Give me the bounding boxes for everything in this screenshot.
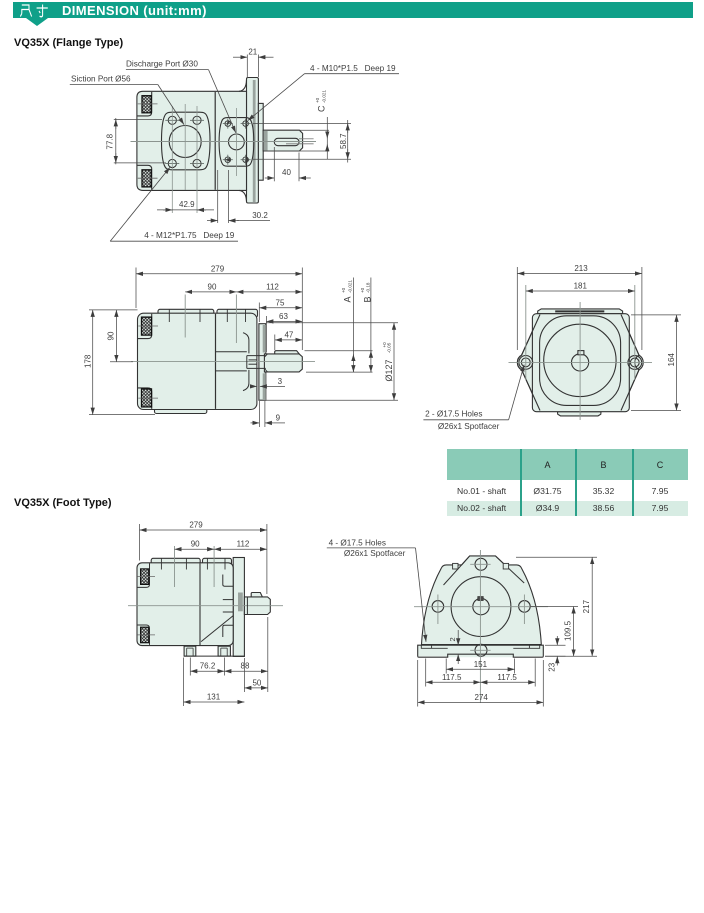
svg-text:131: 131 [207,693,221,702]
svg-text:279: 279 [211,264,225,273]
svg-text:213: 213 [574,264,588,273]
svg-text:2 - Ø17.5 Holes: 2 - Ø17.5 Holes [425,410,482,419]
svg-text:77.8: 77.8 [106,133,115,149]
svg-text:178: 178 [84,354,93,368]
svg-text:Ø26x1 Spotfacer: Ø26x1 Spotfacer [344,549,406,558]
svg-text:30.2: 30.2 [252,211,268,220]
svg-text:75: 75 [276,298,285,307]
svg-text:279: 279 [189,521,203,530]
svg-text:40: 40 [282,168,291,177]
svg-text:9: 9 [276,413,281,422]
svg-text:-0.18: -0.18 [365,282,370,293]
svg-text:Ø127: Ø127 [384,359,394,381]
svg-text:117.5: 117.5 [497,673,517,682]
svg-text:112: 112 [266,282,279,291]
svg-text:90: 90 [107,331,116,340]
svg-text:4 - M10*P1.5 Deep 19: 4 - M10*P1.5 Deep 19 [310,64,396,73]
svg-text:+0: +0 [315,97,320,103]
svg-text:181: 181 [574,282,588,291]
svg-text:4 - Ø17.5 Holes: 4 - Ø17.5 Holes [329,539,386,548]
svg-text:151: 151 [474,660,488,669]
svg-text:42.9: 42.9 [179,200,195,209]
svg-text:90: 90 [208,282,217,291]
svg-text:Ø26x1 Spotfacer: Ø26x1 Spotfacer [438,422,500,431]
svg-text:117.5: 117.5 [442,673,462,682]
svg-text:112: 112 [237,540,250,549]
svg-text:90: 90 [191,540,200,549]
svg-text:109.5: 109.5 [564,620,573,641]
svg-text:+0: +0 [341,287,346,293]
svg-text:+0: +0 [360,287,365,293]
svg-text:23: 23 [547,662,556,671]
svg-text:63: 63 [279,312,288,321]
svg-text:2: 2 [448,637,457,641]
svg-text:C: C [317,105,327,112]
svg-text:4 - M12*P1.75 Deep 19: 4 - M12*P1.75 Deep 19 [144,231,235,240]
svg-text:88: 88 [241,662,250,671]
svg-text:Discharge Port Ø30: Discharge Port Ø30 [126,60,198,69]
svg-text:217: 217 [582,599,591,613]
svg-text:76.2: 76.2 [200,662,216,671]
svg-text:A: A [343,296,353,302]
svg-text:164: 164 [667,353,676,367]
svg-text:47: 47 [284,330,293,339]
svg-text:-0.021: -0.021 [348,280,353,293]
svg-text:50: 50 [252,678,261,687]
svg-text:B: B [363,296,373,302]
svg-text:3: 3 [278,377,283,386]
svg-text:21: 21 [248,47,257,56]
svg-text:Siction Port Ø56: Siction Port Ø56 [71,75,131,84]
svg-text:274: 274 [475,693,489,702]
svg-text:-0.021: -0.021 [322,90,327,103]
svg-text:58.7: 58.7 [339,133,348,149]
svg-text:-0.05: -0.05 [386,342,391,353]
